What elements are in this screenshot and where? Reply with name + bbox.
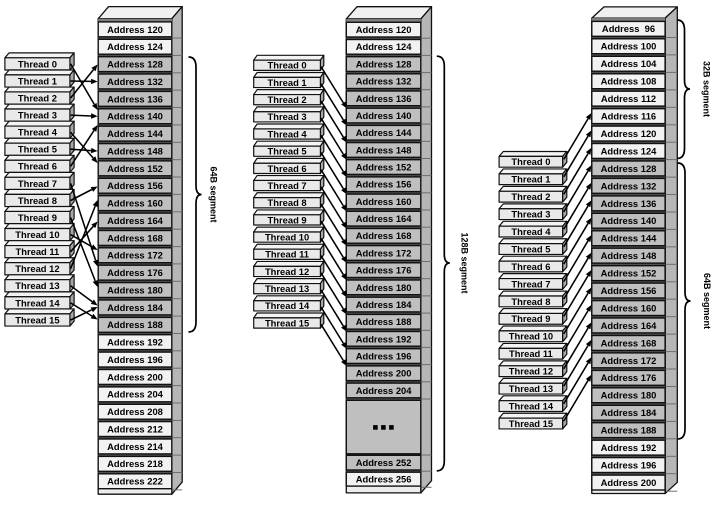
svg-text:Thread 11: Thread 11 xyxy=(509,348,553,359)
svg-text:Address 112: Address 112 xyxy=(601,93,656,104)
svg-text:Address 152: Address 152 xyxy=(356,162,412,173)
svg-text:64B segment: 64B segment xyxy=(209,166,219,222)
svg-text:Thread 0: Thread 0 xyxy=(268,60,307,71)
svg-text:Address 128: Address 128 xyxy=(107,59,163,70)
svg-text:Address 218: Address 218 xyxy=(107,458,163,469)
svg-text:Thread 14: Thread 14 xyxy=(265,300,310,311)
svg-text:Address 148: Address 148 xyxy=(107,145,163,156)
svg-text:Thread 3: Thread 3 xyxy=(511,209,550,220)
svg-text:Thread 12: Thread 12 xyxy=(15,263,59,274)
svg-text:Address 132: Address 132 xyxy=(601,180,657,191)
svg-text:Thread 6: Thread 6 xyxy=(268,163,307,174)
svg-text:Address 164: Address 164 xyxy=(601,320,658,331)
svg-text:Address 100: Address 100 xyxy=(601,41,657,52)
svg-text:Address 144: Address 144 xyxy=(356,127,413,138)
svg-text:Thread 5: Thread 5 xyxy=(268,146,307,157)
svg-text:Thread 4: Thread 4 xyxy=(268,128,308,139)
svg-text:Thread 2: Thread 2 xyxy=(18,92,57,103)
svg-text:Thread 10: Thread 10 xyxy=(509,331,553,342)
svg-text:Address 176: Address 176 xyxy=(356,265,412,276)
svg-text:Address 172: Address 172 xyxy=(356,247,412,258)
svg-text:Address 184: Address 184 xyxy=(107,302,164,313)
svg-text:Thread 7: Thread 7 xyxy=(268,180,307,191)
svg-text:Thread 9: Thread 9 xyxy=(18,212,57,223)
svg-text:Address 188: Address 188 xyxy=(107,319,163,330)
svg-text:Address 104: Address 104 xyxy=(601,58,658,69)
svg-text:Thread 8: Thread 8 xyxy=(268,197,307,208)
svg-text:Address 132: Address 132 xyxy=(356,76,412,87)
svg-text:Address 200: Address 200 xyxy=(107,371,163,382)
svg-text:Thread 5: Thread 5 xyxy=(18,144,57,155)
svg-text:Thread 8: Thread 8 xyxy=(18,195,57,206)
svg-text:Thread 7: Thread 7 xyxy=(18,178,57,189)
svg-text:Address 136: Address 136 xyxy=(356,93,412,104)
svg-text:Address 180: Address 180 xyxy=(601,390,657,401)
svg-text:Address 144: Address 144 xyxy=(107,128,164,139)
svg-text:Thread 14: Thread 14 xyxy=(15,297,60,308)
svg-text:Address 128: Address 128 xyxy=(356,58,412,69)
svg-text:Address 192: Address 192 xyxy=(356,333,412,344)
svg-text:Address 156: Address 156 xyxy=(356,179,412,190)
svg-text:Thread 3: Thread 3 xyxy=(268,111,307,122)
svg-text:Address 160: Address 160 xyxy=(601,302,657,313)
svg-text:Address 168: Address 168 xyxy=(107,232,163,243)
svg-text:Thread 12: Thread 12 xyxy=(265,266,309,277)
svg-text:Address 172: Address 172 xyxy=(601,355,657,366)
svg-text:Address 140: Address 140 xyxy=(356,110,412,121)
svg-text:Address 180: Address 180 xyxy=(356,282,412,293)
svg-text:Thread 3: Thread 3 xyxy=(18,110,57,121)
svg-text:Thread 13: Thread 13 xyxy=(265,283,309,294)
svg-text:Address 196: Address 196 xyxy=(601,460,657,471)
svg-text:Address 124: Address 124 xyxy=(356,41,413,52)
svg-text:Thread 4: Thread 4 xyxy=(18,127,58,138)
svg-text:Address 164: Address 164 xyxy=(107,215,164,226)
svg-text:Thread 9: Thread 9 xyxy=(268,214,307,225)
svg-text:Thread 2: Thread 2 xyxy=(268,94,307,105)
svg-text:Thread 5: Thread 5 xyxy=(511,244,550,255)
svg-text:Address 116: Address 116 xyxy=(601,111,656,122)
svg-text:Address 192: Address 192 xyxy=(107,337,163,348)
svg-text:Address 222: Address 222 xyxy=(107,476,163,487)
svg-text:Address 214: Address 214 xyxy=(107,441,164,452)
svg-text:Address 188: Address 188 xyxy=(356,316,412,327)
svg-text:Thread 0: Thread 0 xyxy=(511,156,550,167)
svg-text:Thread 6: Thread 6 xyxy=(511,261,550,272)
svg-text:Thread 11: Thread 11 xyxy=(16,246,60,257)
svg-text:Thread 10: Thread 10 xyxy=(15,229,59,240)
svg-text:Address 96: Address 96 xyxy=(602,23,655,34)
svg-text:Address 140: Address 140 xyxy=(601,215,657,226)
svg-text:Address 200: Address 200 xyxy=(601,477,657,488)
svg-text:Thread 12: Thread 12 xyxy=(509,366,553,377)
svg-text:Thread 4: Thread 4 xyxy=(511,226,551,237)
svg-text:Address 184: Address 184 xyxy=(356,299,413,310)
svg-text:128B segment: 128B segment xyxy=(460,232,470,293)
svg-text:Address 184: Address 184 xyxy=(601,407,658,418)
svg-text:Address 164: Address 164 xyxy=(356,213,413,224)
svg-text:Address 172: Address 172 xyxy=(107,250,163,261)
svg-text:Address 128: Address 128 xyxy=(601,163,657,174)
svg-text:Address 160: Address 160 xyxy=(356,196,412,207)
svg-text:Address 108: Address 108 xyxy=(601,76,657,87)
svg-text:Thread 11: Thread 11 xyxy=(265,249,309,260)
svg-text:Address 120: Address 120 xyxy=(356,24,412,35)
svg-text:Thread 15: Thread 15 xyxy=(265,317,309,328)
svg-text:Thread 9: Thread 9 xyxy=(511,313,550,324)
svg-text:Address 212: Address 212 xyxy=(107,424,163,435)
svg-text:Address 168: Address 168 xyxy=(601,337,657,348)
svg-text:Address 144: Address 144 xyxy=(601,233,658,244)
svg-text:Address 136: Address 136 xyxy=(107,93,163,104)
svg-text:Address 188: Address 188 xyxy=(601,425,657,436)
svg-text:Thread 6: Thread 6 xyxy=(18,161,57,172)
svg-text:Address 176: Address 176 xyxy=(107,267,163,278)
svg-text:Address 148: Address 148 xyxy=(601,250,657,261)
svg-text:Address 156: Address 156 xyxy=(107,180,163,191)
svg-text:Address 152: Address 152 xyxy=(601,268,657,279)
svg-text:Thread 1: Thread 1 xyxy=(18,75,57,86)
svg-text:Address 152: Address 152 xyxy=(107,163,163,174)
svg-text:Thread 7: Thread 7 xyxy=(511,278,550,289)
svg-text:Address 140: Address 140 xyxy=(107,111,163,122)
svg-text:Address 196: Address 196 xyxy=(107,354,163,365)
svg-text:Thread 1: Thread 1 xyxy=(511,174,550,185)
svg-text:Address 136: Address 136 xyxy=(601,198,657,209)
svg-text:Thread 0: Thread 0 xyxy=(18,58,57,69)
svg-text:Thread 8: Thread 8 xyxy=(511,296,550,307)
svg-text:Thread 14: Thread 14 xyxy=(509,401,554,412)
svg-text:Address 204: Address 204 xyxy=(107,389,164,400)
svg-text:Thread 1: Thread 1 xyxy=(268,77,307,88)
svg-text:Address 168: Address 168 xyxy=(356,230,412,241)
svg-text:Address 200: Address 200 xyxy=(356,368,412,379)
svg-text:Address 156: Address 156 xyxy=(601,285,657,296)
svg-text:Address 256: Address 256 xyxy=(356,474,412,485)
svg-text:Address 132: Address 132 xyxy=(107,76,163,87)
svg-text:Thread 10: Thread 10 xyxy=(265,232,309,243)
svg-text:Thread 13: Thread 13 xyxy=(15,280,59,291)
svg-text:64B segment: 64B segment xyxy=(702,273,712,329)
svg-text:Thread 2: Thread 2 xyxy=(511,191,550,202)
svg-text:Address 208: Address 208 xyxy=(107,406,163,417)
svg-text:Address 196: Address 196 xyxy=(356,351,412,362)
svg-text:Address 120: Address 120 xyxy=(107,24,163,35)
svg-text:Thread 15: Thread 15 xyxy=(15,314,59,325)
svg-text:Address 124: Address 124 xyxy=(107,41,164,52)
svg-text:Address 124: Address 124 xyxy=(601,145,658,156)
svg-text:Thread 15: Thread 15 xyxy=(509,418,553,429)
svg-text:Address 252: Address 252 xyxy=(356,457,412,468)
svg-text:Address 120: Address 120 xyxy=(601,128,657,139)
svg-text:Address 204: Address 204 xyxy=(356,385,413,396)
svg-text:Address 148: Address 148 xyxy=(356,144,412,155)
svg-text:32B segment: 32B segment xyxy=(702,61,712,117)
svg-text:Address 160: Address 160 xyxy=(107,198,163,209)
svg-text:Thread 13: Thread 13 xyxy=(509,383,553,394)
svg-text:Address 192: Address 192 xyxy=(601,442,657,453)
svg-text:Address 176: Address 176 xyxy=(601,372,657,383)
svg-text:Address 180: Address 180 xyxy=(107,284,163,295)
